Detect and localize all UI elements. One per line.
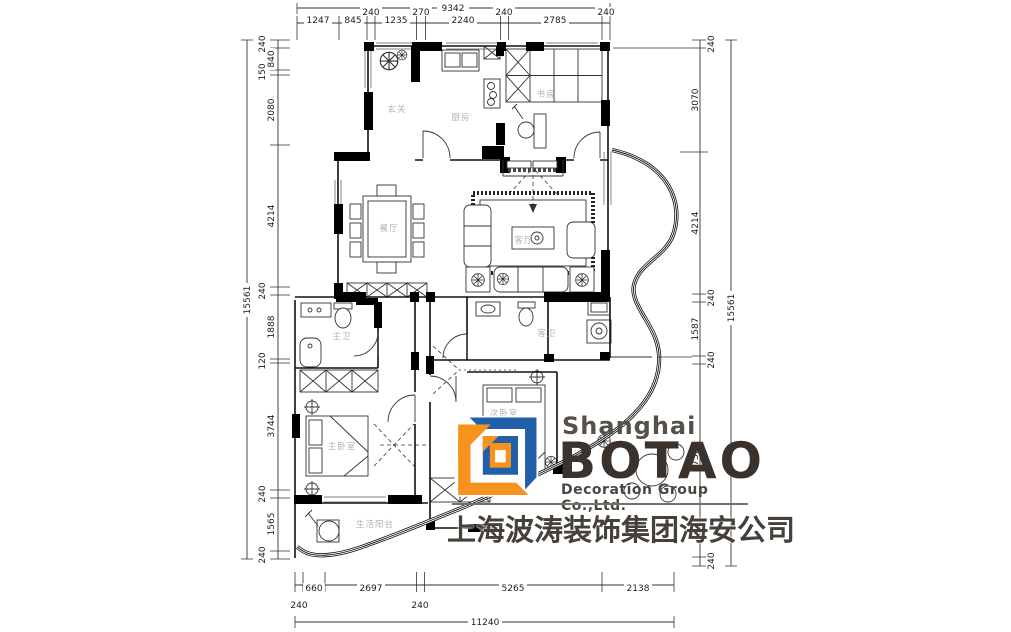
dim-left-4: 4214: [267, 204, 277, 227]
guest-bath-fixtures: [476, 302, 535, 326]
dim-left-9: 240: [258, 485, 268, 502]
dim-right-total: 15561: [727, 294, 737, 323]
toilet: [335, 308, 351, 328]
room-label-living: 客厅: [514, 235, 533, 246]
room-label-guest-bath: 客卫: [537, 328, 556, 339]
dim-left-total: 15561: [243, 286, 253, 315]
dim-left-8: 3744: [267, 414, 277, 437]
dim-left-1: 840: [267, 50, 277, 67]
dim-left-11: 240: [258, 546, 268, 563]
logo-chinese-name: 上海波涛装饰集团海安公司: [447, 507, 795, 549]
dim-right-2: 4214: [691, 211, 701, 234]
dim-bottom-0: 240: [290, 601, 307, 611]
dim-bottom-1: 660: [305, 584, 322, 594]
floor-plan-page: 玄关 厨房 书房 餐厅 客厅 主卫 客卫 次卧室 主卧室 生活阳台 9342 1…: [0, 0, 1011, 628]
dim-right-0: 240: [707, 35, 717, 52]
dim-left-3: 2080: [267, 98, 277, 121]
dim-bottom-3: 240: [411, 601, 428, 611]
utility-fixtures: [587, 300, 611, 343]
dim-top-2: 240: [362, 8, 379, 18]
sofa-left: [464, 205, 491, 267]
dim-right-3: 240: [707, 289, 717, 306]
armchair: [567, 222, 595, 258]
room-label-study: 书房: [536, 89, 555, 100]
desk-chair: [518, 122, 534, 138]
dim-bottom-2: 2697: [360, 584, 383, 594]
dim-top-4: 270: [412, 8, 429, 18]
dim-top-total: 9342: [442, 4, 465, 14]
room-label-kitchen: 厨房: [451, 112, 470, 123]
desk: [534, 114, 546, 148]
service-balcony-fixtures: [305, 510, 339, 542]
sofa-bottom: [494, 267, 568, 292]
dim-left-7: 120: [258, 352, 268, 369]
dim-left-5: 240: [258, 282, 268, 299]
dim-right-1: 3070: [691, 88, 701, 111]
dim-top-7: 2785: [544, 16, 567, 26]
bathtub: [300, 338, 321, 367]
room-label-entry: 玄关: [387, 104, 406, 115]
dimension-text-bottom: 11240 240 660 2697 240 5265 2138: [288, 583, 652, 628]
stove: [484, 79, 500, 108]
dim-top-8: 240: [597, 8, 614, 18]
kitchen-fixtures: [442, 46, 500, 108]
botao-logo: Shanghai BOTAO Decoration Group Co.,Ltd.…: [446, 408, 776, 568]
dim-left-6: 1888: [267, 315, 277, 338]
dim-left-10: 1565: [267, 513, 277, 536]
dim-top-3: 1235: [385, 16, 408, 26]
dim-top-0: 1247: [307, 16, 330, 26]
dim-top-5: 2240: [452, 16, 475, 26]
dim-right-4: 1587: [691, 318, 701, 341]
room-label-master-bath: 主卫: [332, 331, 351, 342]
logo-divider: [452, 503, 748, 505]
botao-logo-mark-icon: [452, 414, 540, 502]
dim-bottom-total: 11240: [471, 618, 500, 628]
dim-left-2: 150: [258, 63, 268, 80]
room-label-service-balcony: 生活阳台: [356, 519, 394, 530]
dim-top-1: 845: [344, 16, 361, 26]
dim-top-6: 240: [495, 8, 512, 18]
room-label-master-bedroom: 主卧室: [328, 441, 357, 452]
dim-bottom-4: 5265: [502, 584, 525, 594]
dim-right-5: 240: [707, 351, 717, 368]
dim-bottom-5: 2138: [627, 584, 650, 594]
entry-plants: [380, 50, 407, 70]
room-label-dining: 餐厅: [379, 224, 398, 234]
